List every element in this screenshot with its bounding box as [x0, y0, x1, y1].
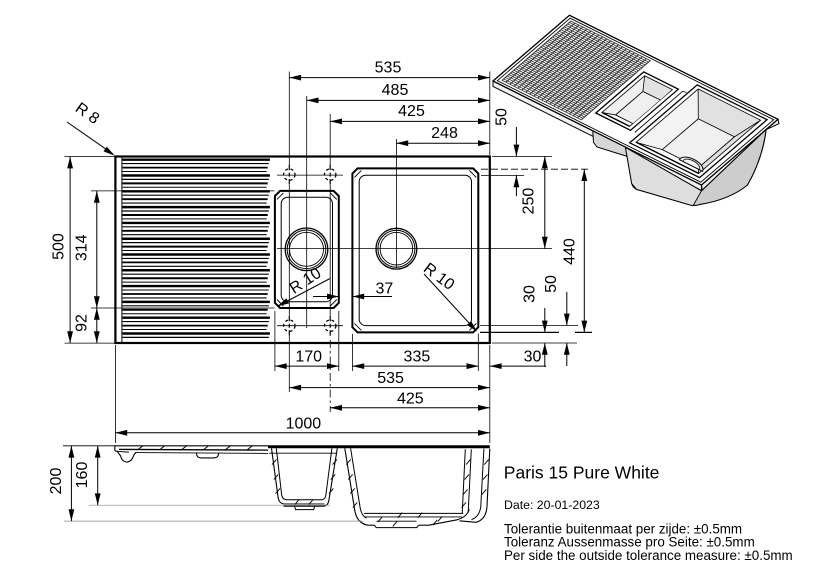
svg-text:160: 160 [74, 462, 91, 489]
svg-text:200: 200 [48, 468, 65, 495]
svg-text:250: 250 [521, 188, 538, 215]
svg-text:425: 425 [398, 103, 425, 120]
svg-text:535: 535 [375, 59, 402, 76]
svg-text:50: 50 [543, 275, 560, 293]
svg-text:1000: 1000 [286, 415, 322, 432]
svg-text:50: 50 [494, 108, 511, 126]
svg-text:248: 248 [431, 125, 458, 142]
svg-text:314: 314 [73, 234, 90, 261]
svg-text:170: 170 [295, 348, 322, 365]
svg-text:335: 335 [404, 348, 431, 365]
svg-text:37: 37 [376, 280, 394, 297]
svg-text:425: 425 [397, 390, 424, 407]
svg-text:R 8: R 8 [72, 100, 102, 128]
svg-text:440: 440 [562, 238, 579, 265]
svg-text:535: 535 [377, 370, 404, 387]
svg-text:Date: 20-01-2023: Date: 20-01-2023 [504, 498, 600, 512]
svg-text:30: 30 [524, 348, 542, 365]
svg-text:Paris 15 Pure White: Paris 15 Pure White [504, 463, 660, 483]
svg-text:92: 92 [73, 314, 90, 332]
svg-text:Per side the outside tolerance: Per side the outside tolerance measure: … [504, 548, 793, 563]
svg-text:30: 30 [522, 285, 539, 303]
svg-text:485: 485 [382, 82, 409, 99]
svg-text:500: 500 [51, 233, 68, 260]
